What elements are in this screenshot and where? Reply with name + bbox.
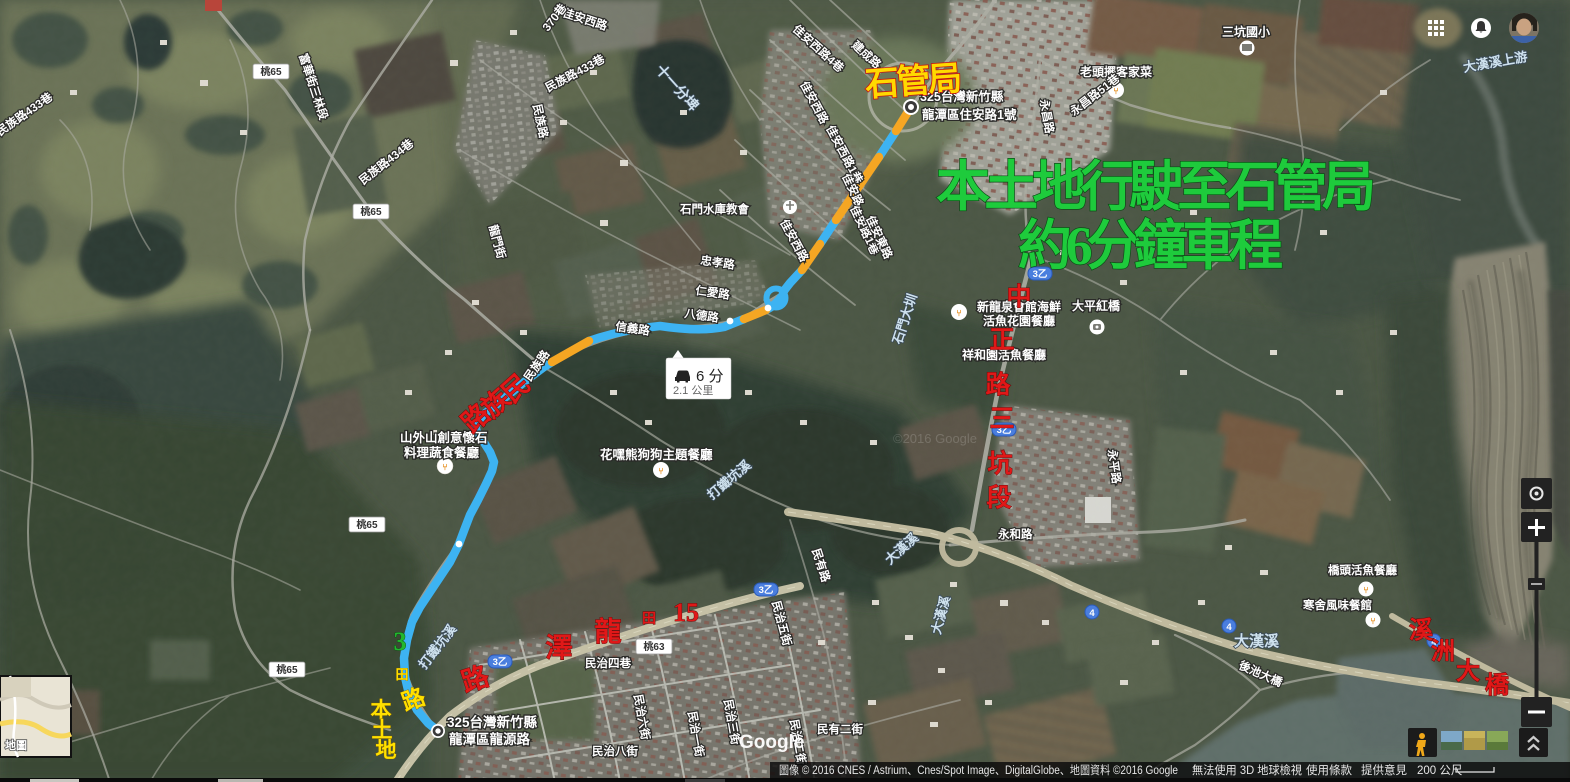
svg-text:大漢溪: 大漢溪 [1234, 632, 1280, 650]
svg-text:龍潭區龍源路: 龍潭區龍源路 [449, 731, 530, 747]
svg-text:龍潭區住安路1號: 龍潭區住安路1號 [922, 107, 1017, 122]
svg-text:3乙: 3乙 [759, 585, 774, 596]
svg-text:⑂: ⑂ [442, 462, 447, 472]
svg-text:桃65: 桃65 [260, 65, 282, 78]
svg-text:6 分: 6 分 [696, 368, 724, 385]
svg-text:民治四巷: 民治四巷 [585, 656, 631, 670]
svg-text:⑂: ⑂ [1363, 585, 1368, 595]
svg-text:坑: 坑 [987, 449, 1012, 478]
svg-text:無法使用 3D 地球檢視: 無法使用 3D 地球檢視 [1192, 763, 1302, 777]
svg-text:石門水庫教會: 石門水庫教會 [679, 202, 749, 216]
svg-text:洲: 洲 [1431, 638, 1455, 665]
svg-text:3乙: 3乙 [493, 657, 508, 668]
svg-text:永和路: 永和路 [997, 527, 1033, 541]
svg-text:正: 正 [989, 327, 1014, 354]
svg-text:本土地行駛至石管局: 本土地行駛至石管局 [936, 157, 1376, 217]
svg-text:圖像 © 2016 CNES / Astrium、Cnes/: 圖像 © 2016 CNES / Astrium、Cnes/Spot Image… [779, 763, 1178, 777]
svg-text:大: 大 [1456, 658, 1480, 685]
svg-text:寒舍風味餐館: 寒舍風味餐館 [1302, 598, 1372, 612]
svg-text:中: 中 [1006, 283, 1031, 311]
svg-text:桃63: 桃63 [643, 640, 665, 653]
svg-text:料理蔬食餐廳: 料理蔬食餐廳 [404, 445, 480, 460]
svg-text:民治八街: 民治八街 [592, 744, 638, 758]
svg-text:桃65: 桃65 [356, 518, 378, 531]
svg-text:田: 田 [642, 611, 656, 627]
svg-text:段: 段 [986, 483, 1011, 512]
svg-text:使用條款: 使用條款 [1306, 763, 1352, 777]
svg-text:石管局: 石管局 [863, 59, 963, 104]
svg-text:三坑國小: 三坑國小 [1222, 24, 1270, 39]
svg-text:約6分鐘車程: 約6分鐘車程 [1018, 216, 1283, 276]
svg-text:三: 三 [989, 406, 1014, 433]
svg-text:活魚花園餐廳: 活魚花園餐廳 [983, 313, 1055, 328]
svg-text:桃65: 桃65 [360, 205, 382, 218]
svg-text:Google: Google [739, 732, 804, 753]
svg-text:⑂: ⑂ [956, 308, 961, 318]
svg-text:地圖: 地圖 [5, 738, 27, 752]
svg-text:2.1 公里: 2.1 公里 [673, 384, 713, 397]
svg-text:3: 3 [394, 627, 407, 656]
svg-text:4: 4 [1089, 608, 1095, 619]
svg-text:大平紅橋: 大平紅橋 [1072, 298, 1121, 313]
svg-text:4: 4 [1226, 622, 1232, 633]
svg-text:路: 路 [985, 371, 1011, 399]
svg-text:田: 田 [395, 667, 408, 682]
svg-text:桃65: 桃65 [276, 663, 298, 676]
svg-text:橋頭活魚餐廳: 橋頭活魚餐廳 [1328, 563, 1397, 577]
svg-text:地: 地 [376, 738, 397, 762]
svg-text:⑂: ⑂ [1370, 616, 1375, 626]
svg-text:15: 15 [673, 598, 699, 627]
svg-text:龍: 龍 [595, 616, 622, 647]
svg-text:花嘿熊狗狗主題餐廳: 花嘿熊狗狗主題餐廳 [600, 447, 713, 462]
svg-text:©2016 Google: ©2016 Google [893, 431, 977, 446]
svg-text:橋: 橋 [1485, 672, 1510, 699]
svg-text:提供意見: 提供意見 [1361, 763, 1407, 777]
svg-text:⑂: ⑂ [658, 466, 663, 476]
svg-text:澤: 澤 [546, 633, 573, 663]
svg-text:325台灣新竹縣: 325台灣新竹縣 [447, 714, 538, 730]
svg-text:民有二街: 民有二街 [817, 722, 863, 736]
